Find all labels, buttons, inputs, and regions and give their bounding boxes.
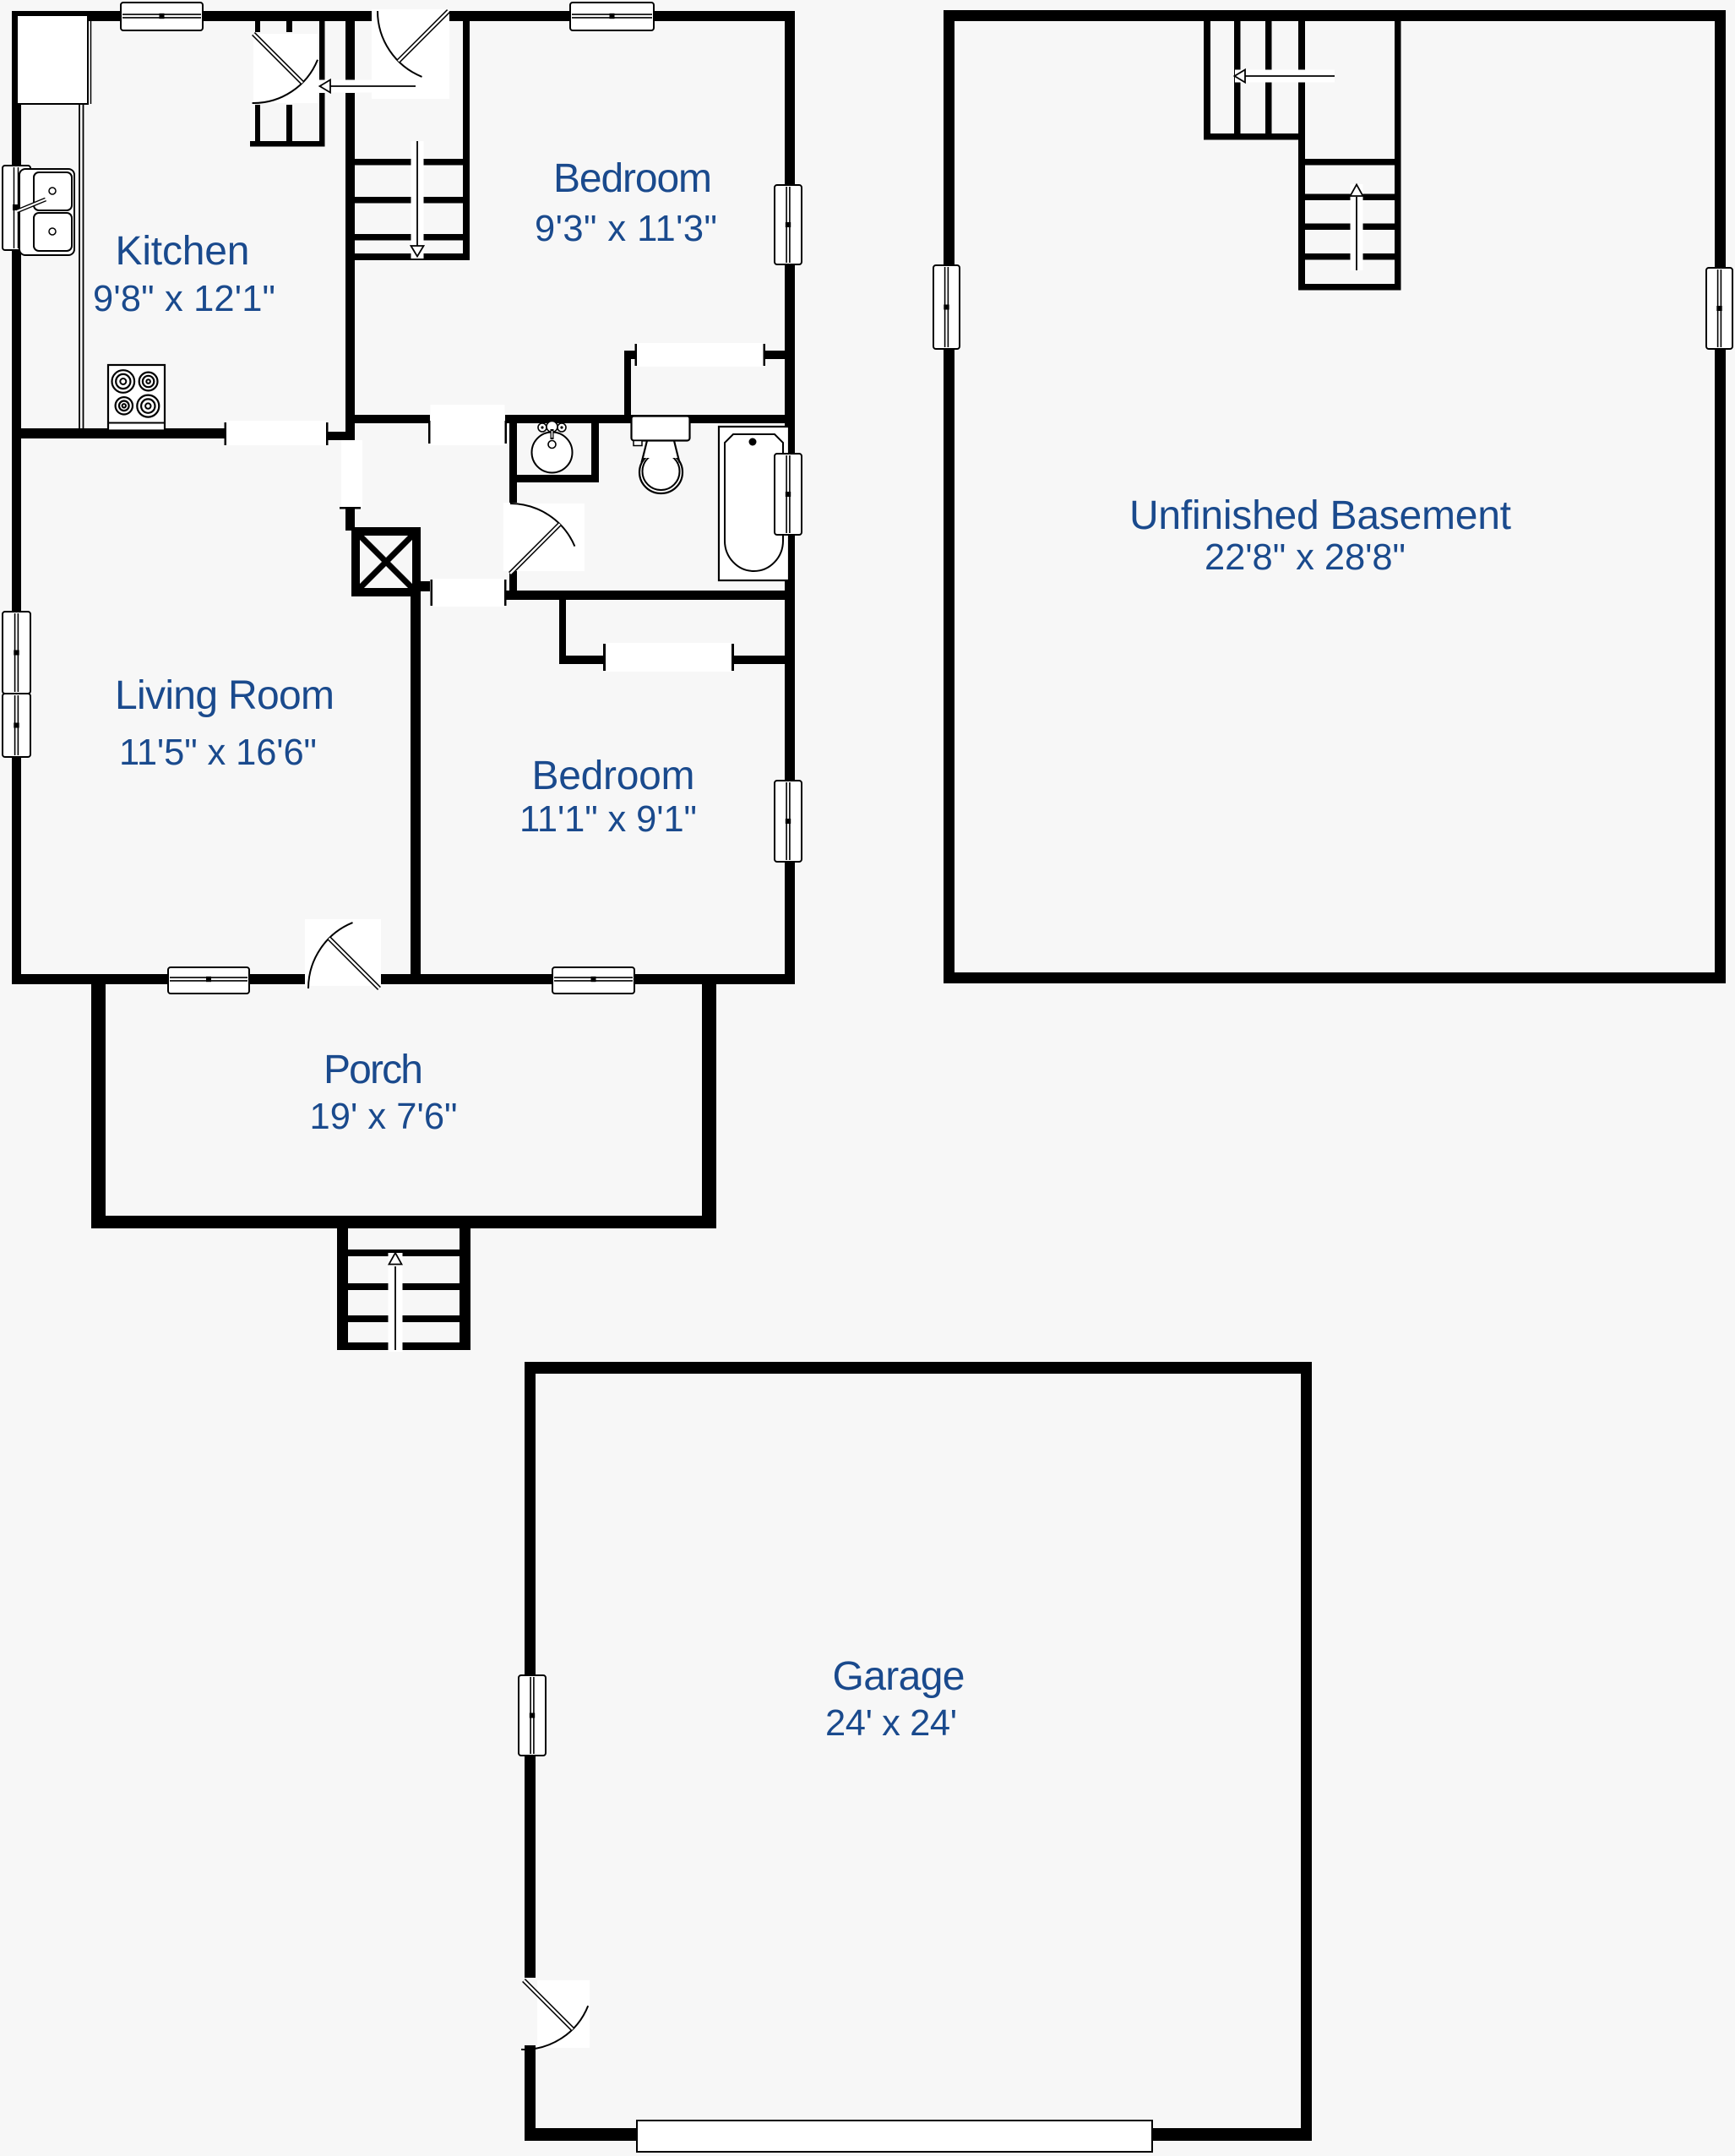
- svg-text:11'1" x 9'1": 11'1" x 9'1": [519, 799, 697, 840]
- svg-text:9'3" x 11'3": 9'3" x 11'3": [535, 209, 717, 249]
- svg-text:Bedroom: Bedroom: [553, 156, 712, 201]
- svg-text:9'8" x 12'1": 9'8" x 12'1": [93, 279, 275, 319]
- svg-text:11'5" x 16'6": 11'5" x 16'6": [119, 732, 317, 773]
- svg-text:19' x 7'6": 19' x 7'6": [310, 1097, 458, 1137]
- svg-text:22'8" x 28'8": 22'8" x 28'8": [1205, 537, 1406, 578]
- svg-text:Porch: Porch: [324, 1048, 423, 1092]
- svg-text:Living Room: Living Room: [115, 673, 334, 718]
- svg-text:Bedroom: Bedroom: [532, 754, 695, 798]
- svg-text:24' x 24': 24' x 24': [825, 1703, 957, 1744]
- svg-text:Garage: Garage: [833, 1654, 965, 1699]
- svg-text:Kitchen: Kitchen: [116, 229, 250, 274]
- svg-text:Unfinished Basement: Unfinished Basement: [1129, 493, 1511, 538]
